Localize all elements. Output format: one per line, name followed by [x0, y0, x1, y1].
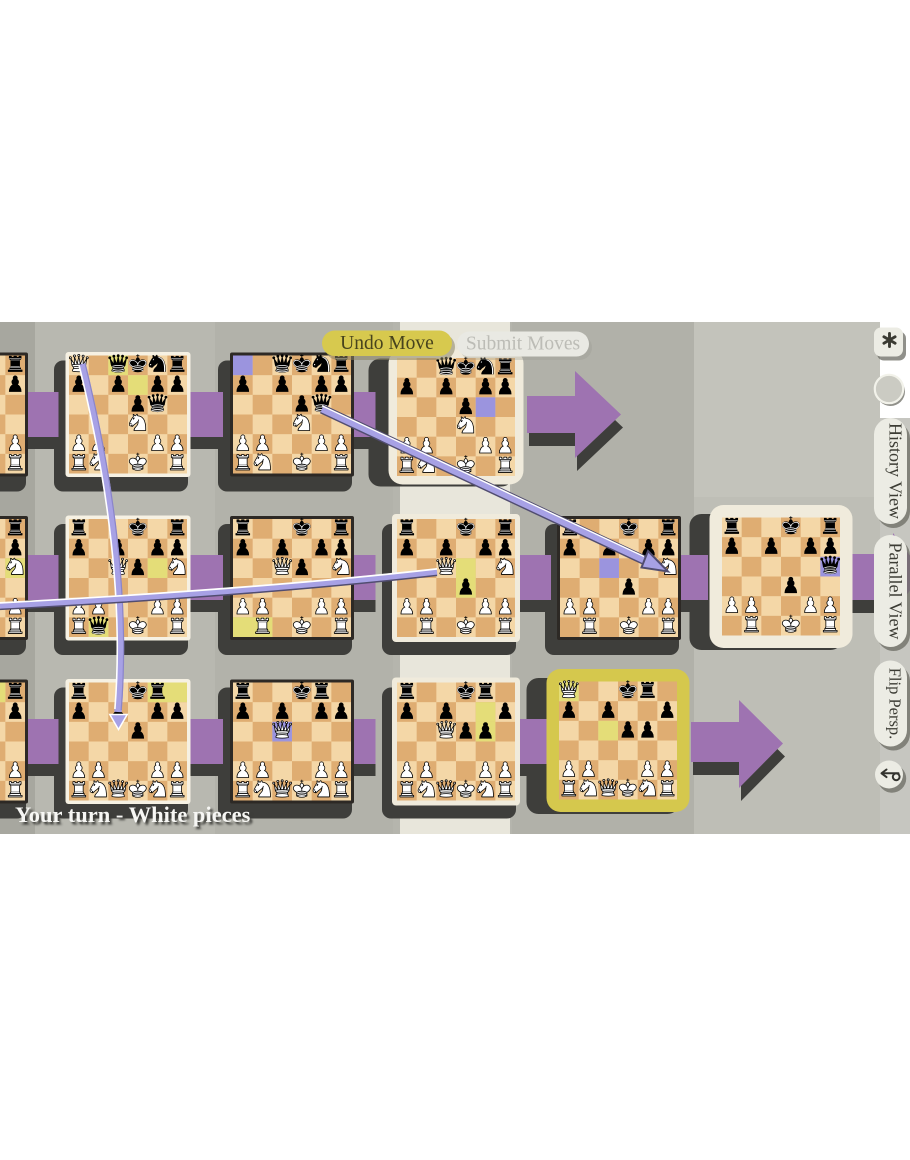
svg-text:Submit Moves: Submit Moves [466, 334, 580, 355]
svg-text:Flip Persp.: Flip Persp. [886, 668, 905, 740]
svg-text:Undo Move: Undo Move [340, 333, 434, 354]
svg-text:History View: History View [886, 423, 906, 519]
svg-text:Parallel View: Parallel View [886, 542, 906, 639]
svg-text:Your turn - White pieces: Your turn - White pieces [15, 802, 251, 827]
